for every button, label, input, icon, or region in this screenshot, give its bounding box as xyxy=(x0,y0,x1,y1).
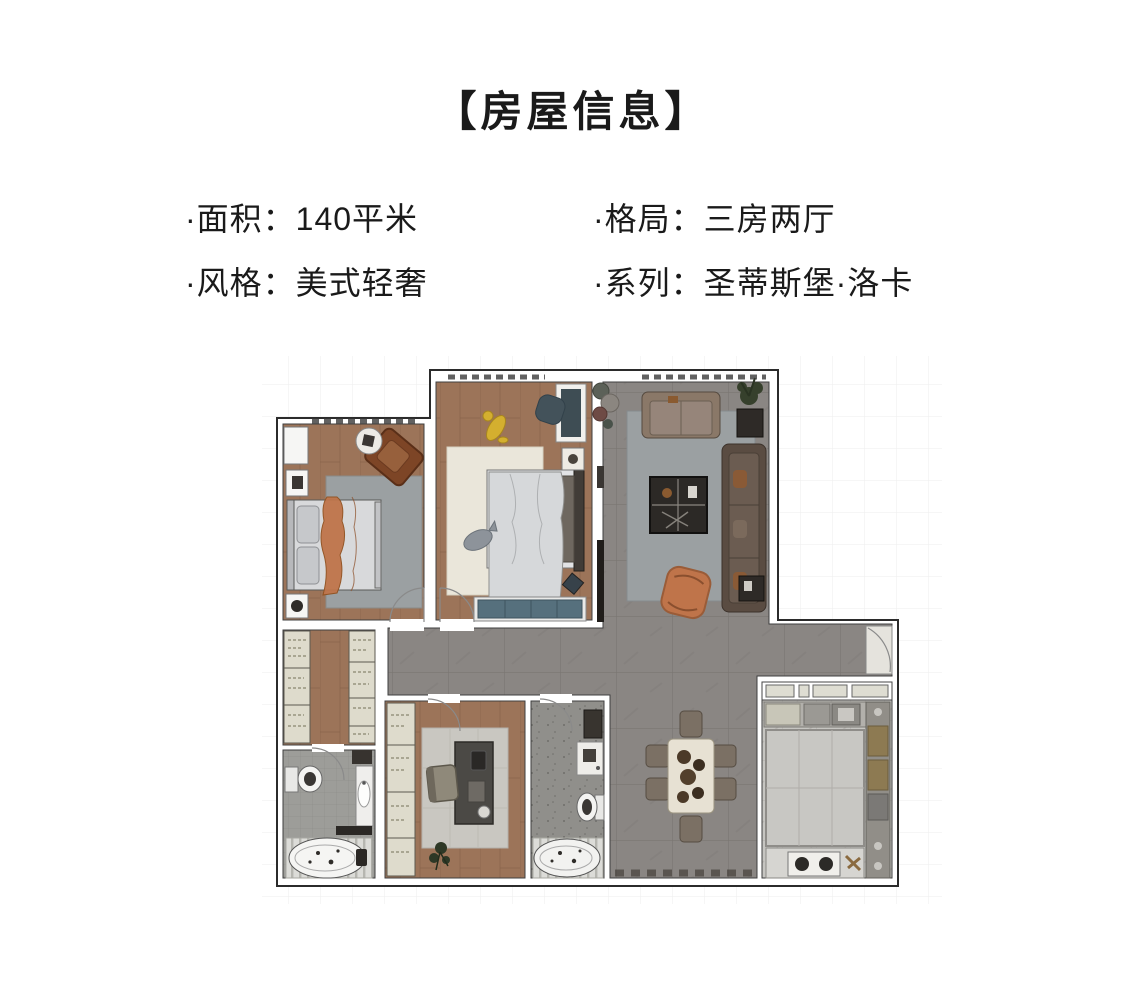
round-side-table xyxy=(356,428,382,454)
tall-cabinets xyxy=(866,702,890,878)
desk xyxy=(455,742,493,824)
wardrobe xyxy=(349,631,375,743)
bathtub xyxy=(534,839,600,877)
floorplan-image xyxy=(0,0,1145,1000)
master-bathroom xyxy=(283,750,375,878)
coffee-table xyxy=(650,477,707,533)
nightstand xyxy=(562,448,584,470)
tv-unit xyxy=(597,540,604,622)
kids-bedroom xyxy=(436,377,592,621)
window-bench xyxy=(474,597,586,621)
mirror-cabinet xyxy=(584,710,602,738)
study xyxy=(385,701,525,878)
toilet xyxy=(577,793,604,821)
bookshelf xyxy=(387,703,415,876)
toilet xyxy=(285,766,322,792)
stove-counter xyxy=(766,848,864,878)
walk-in-closet xyxy=(283,630,375,745)
wardrobe xyxy=(284,631,310,743)
kitchen-window xyxy=(762,682,892,700)
sofa xyxy=(642,392,720,438)
second-bathroom xyxy=(531,701,604,878)
desk-chair xyxy=(426,765,458,803)
double-bed xyxy=(287,497,381,595)
house-info-card: 【房屋信息】 ·面积：140平米 ·格局：三房两厅 ·风格：美式轻奢 ·系列：圣… xyxy=(0,0,1145,1000)
kitchen xyxy=(762,682,892,878)
balcony-door xyxy=(866,626,892,674)
shelf xyxy=(336,826,372,835)
vanity-sink xyxy=(577,742,603,775)
side-table xyxy=(737,409,763,437)
master-bedroom xyxy=(283,421,425,620)
